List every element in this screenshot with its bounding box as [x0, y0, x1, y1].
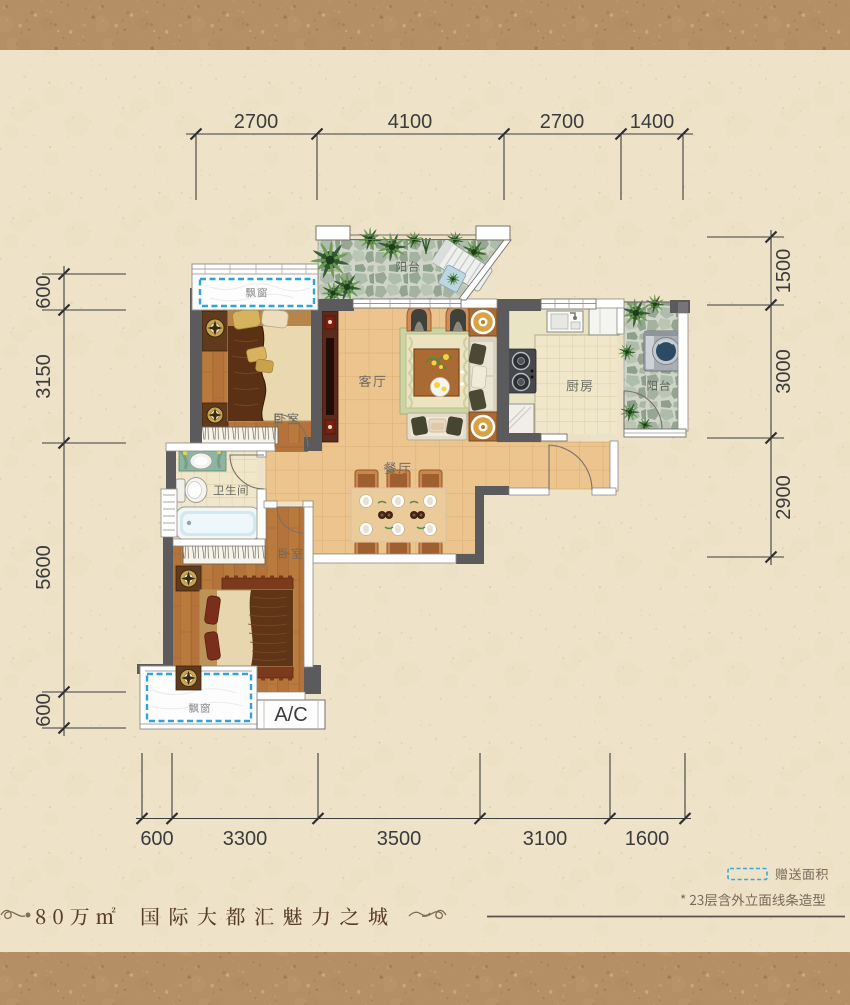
svg-text:600: 600	[140, 828, 173, 850]
svg-text:1500: 1500	[773, 249, 795, 294]
svg-text:5600: 5600	[33, 545, 55, 590]
svg-text:3100: 3100	[523, 828, 568, 850]
svg-text:A/C: A/C	[274, 704, 307, 726]
svg-text:4100: 4100	[388, 111, 433, 133]
svg-text:3150: 3150	[33, 354, 55, 399]
svg-text:2700: 2700	[234, 111, 279, 133]
svg-text:3000: 3000	[773, 349, 795, 394]
svg-text:600: 600	[33, 693, 55, 726]
svg-text:1400: 1400	[630, 111, 675, 133]
svg-text:600: 600	[33, 275, 55, 308]
svg-text:3500: 3500	[377, 828, 422, 850]
svg-text:1600: 1600	[625, 828, 670, 850]
svg-text:2900: 2900	[773, 475, 795, 520]
svg-text:3300: 3300	[223, 828, 268, 850]
svg-text:2700: 2700	[540, 111, 585, 133]
